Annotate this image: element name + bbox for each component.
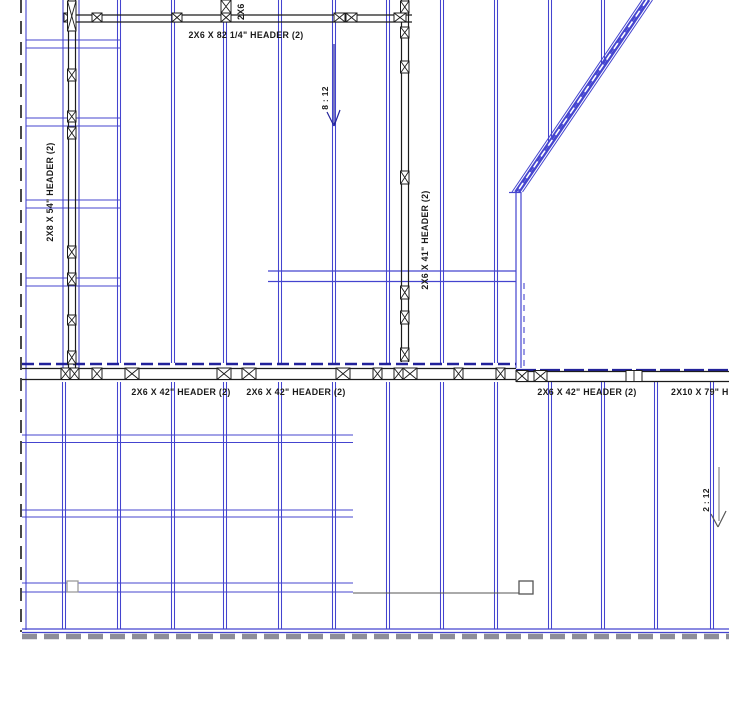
header-82-label: 2X6 X 82 1/4" HEADER (2) [188, 30, 303, 40]
slope-8-12-label: 8 : 12 [320, 86, 330, 110]
framing-plan-page: 2X6 X 82 1/4" HEADER (2)2X62X8 X 54" HEA… [0, 0, 729, 710]
header-42-c-label: 2X6 X 42" HEADER (2) [537, 387, 636, 397]
header-42-a-label: 2X6 X 42" HEADER (2) [131, 387, 230, 397]
slope-2-12-label: 2 : 12 [701, 488, 711, 512]
plan-line [523, 0, 653, 192]
marker-square [67, 581, 78, 592]
header-41-label: 2X6 X 41" HEADER (2) [420, 190, 430, 289]
framing-plan-canvas: 2X6 X 82 1/4" HEADER (2)2X62X8 X 54" HEA… [0, 0, 729, 710]
header-79-label: 2X10 X 79" H [671, 387, 729, 397]
header-42-b-label: 2X6 X 42" HEADER (2) [246, 387, 345, 397]
plan-line [512, 0, 642, 192]
plan-line [334, 110, 340, 126]
header-2x6-cut-label: 2X6 [236, 3, 246, 20]
header-54-label: 2X8 X 54" HEADER (2) [45, 142, 55, 241]
plan-line [516, 0, 646, 192]
plan-line [519, 0, 649, 192]
marker-square [519, 581, 533, 594]
plan-line [711, 514, 718, 527]
